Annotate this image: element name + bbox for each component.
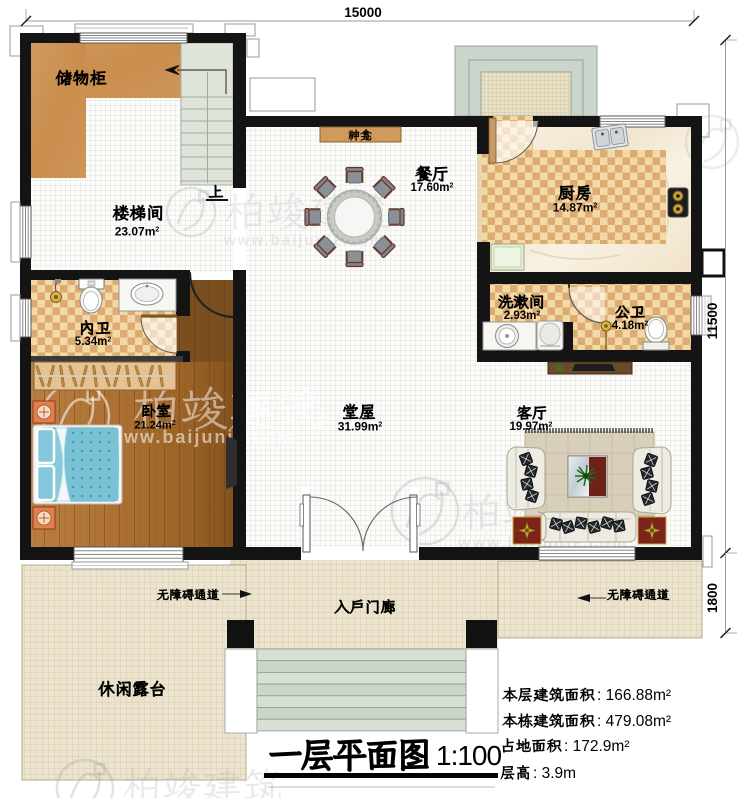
svg-text:11500: 11500 <box>705 303 720 340</box>
svg-text:31.99m2: 31.99m2 <box>338 419 383 433</box>
svg-text:15000: 15000 <box>344 5 382 20</box>
svg-text:1:100: 1:100 <box>436 740 501 771</box>
svg-text:23.07m2: 23.07m2 <box>115 224 160 238</box>
svg-text:17.60m2: 17.60m2 <box>411 182 454 194</box>
svg-text:4.18m2: 4.18m2 <box>612 320 649 332</box>
svg-text:1800: 1800 <box>705 583 720 613</box>
svg-text:5.34m2: 5.34m2 <box>75 336 112 348</box>
svg-text:14.87m2: 14.87m2 <box>553 200 598 214</box>
svg-text:: 479.08m²: : 479.08m² <box>597 713 671 730</box>
svg-text:19.97m2: 19.97m2 <box>510 421 553 433</box>
svg-text:: 3.9m: : 3.9m <box>533 765 576 782</box>
svg-text:2.93m2: 2.93m2 <box>504 310 541 322</box>
svg-text:21.24m2: 21.24m2 <box>134 420 175 432</box>
svg-text:: 166.88m²: : 166.88m² <box>597 687 671 704</box>
svg-text:: 172.9m²: : 172.9m² <box>564 738 629 755</box>
